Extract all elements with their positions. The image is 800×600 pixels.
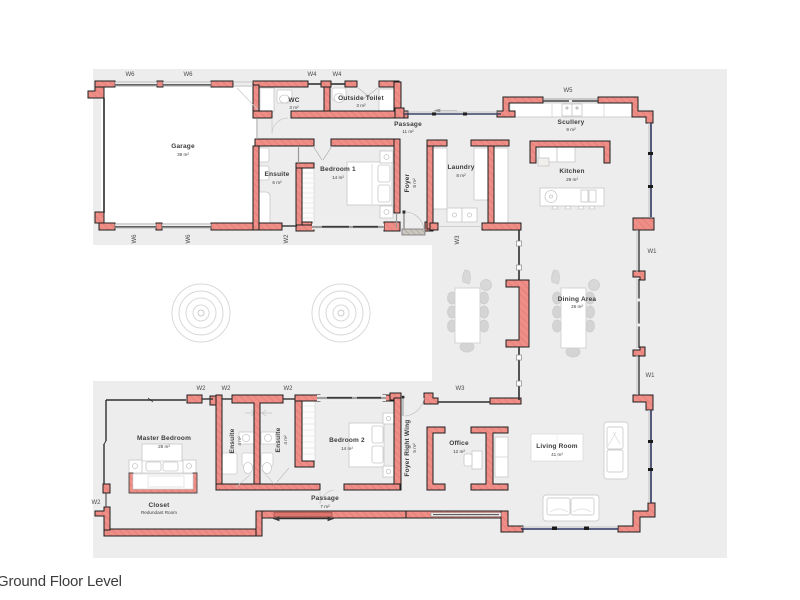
svg-text:Ground Floor Level: Ground Floor Level [0, 573, 122, 590]
svg-text:3 m²: 3 m² [289, 105, 299, 110]
svg-text:Passage: Passage [394, 121, 422, 128]
svg-text:Dining Area: Dining Area [558, 296, 597, 303]
svg-text:Foyer Right Wing: Foyer Right Wing [404, 420, 411, 477]
svg-text:W3: W3 [456, 386, 466, 392]
svg-text:W1: W1 [648, 249, 658, 255]
svg-text:Closet: Closet [148, 502, 170, 509]
svg-text:W2: W2 [197, 386, 207, 392]
svg-text:26 m²: 26 m² [571, 304, 583, 309]
svg-text:41 m²: 41 m² [551, 452, 563, 457]
svg-text:Bedroom 2: Bedroom 2 [329, 437, 365, 444]
svg-text:W6: W6 [184, 72, 194, 78]
svg-text:Outside Toilet: Outside Toilet [338, 95, 384, 102]
svg-text:W2: W2 [284, 386, 294, 392]
svg-text:W3: W3 [455, 235, 461, 245]
svg-text:W2: W2 [284, 234, 290, 244]
svg-text:12 m²: 12 m² [453, 449, 465, 454]
svg-text:W6: W6 [186, 234, 192, 244]
svg-text:W1: W1 [646, 373, 656, 379]
svg-text:Living Room: Living Room [536, 443, 578, 450]
svg-text:Ensuite: Ensuite [275, 427, 282, 452]
svg-text:14 m²: 14 m² [341, 446, 353, 451]
svg-text:Ensuite: Ensuite [229, 428, 236, 453]
svg-text:W2: W2 [222, 386, 232, 392]
svg-text:5 m²: 5 m² [412, 443, 417, 453]
svg-text:Garage: Garage [171, 143, 195, 150]
svg-text:Passage: Passage [311, 495, 339, 502]
svg-text:Scullery: Scullery [558, 119, 585, 126]
svg-text:3 m²: 3 m² [356, 103, 366, 108]
svg-text:W6: W6 [126, 72, 136, 78]
svg-text:Foyer: Foyer [404, 173, 411, 192]
svg-text:4 m²: 4 m² [237, 436, 242, 446]
svg-text:WC: WC [288, 97, 299, 104]
svg-text:Redundant Room: Redundant Room [141, 510, 177, 515]
svg-text:9 m²: 9 m² [566, 127, 576, 132]
svg-text:Ensuite: Ensuite [265, 171, 290, 178]
svg-text:28 m²: 28 m² [158, 444, 170, 449]
svg-text:8 m²: 8 m² [456, 173, 466, 178]
svg-text:W2: W2 [92, 500, 102, 506]
svg-text:6 m²: 6 m² [272, 180, 282, 185]
svg-text:39 m²: 39 m² [177, 152, 189, 157]
svg-text:Office: Office [449, 440, 469, 447]
svg-text:Bedroom 1: Bedroom 1 [320, 166, 356, 173]
svg-text:4 m²: 4 m² [283, 435, 288, 445]
svg-text:W4: W4 [308, 72, 318, 78]
svg-text:7 m²: 7 m² [320, 504, 330, 509]
svg-text:Master Bedroom: Master Bedroom [137, 435, 191, 442]
svg-text:Laundry: Laundry [447, 164, 474, 171]
svg-text:14 m²: 14 m² [332, 175, 344, 180]
svg-text:W4: W4 [333, 72, 343, 78]
svg-text:W5: W5 [564, 88, 574, 94]
svg-text:29 m²: 29 m² [566, 177, 578, 182]
svg-text:8 m²: 8 m² [412, 178, 417, 188]
svg-text:Kitchen: Kitchen [559, 168, 584, 175]
svg-text:W6: W6 [132, 234, 138, 244]
svg-text:11 m²: 11 m² [402, 129, 414, 134]
